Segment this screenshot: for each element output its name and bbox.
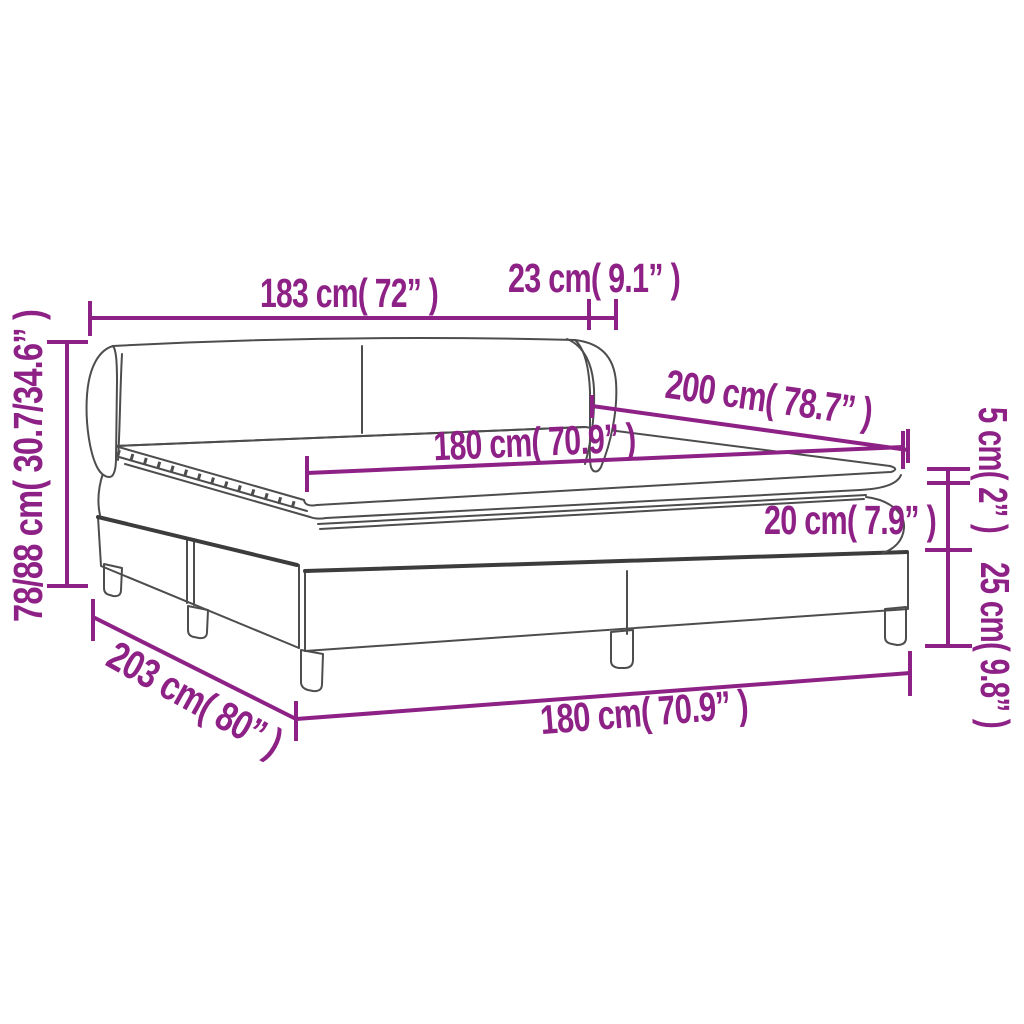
bed-leg	[885, 607, 906, 645]
base-top-edge	[305, 552, 907, 571]
label-header-width: 183 cm( 72” )	[260, 270, 438, 316]
label-base-height: 25 cm( 9.8” )	[972, 562, 1018, 728]
diagram-svg: 183 cm( 72” ) 23 cm( 9.1” ) 78/88 cm( 30…	[0, 0, 1024, 1024]
headboard-left-wing	[87, 346, 117, 477]
dim-line-wing-depth	[589, 299, 616, 330]
label-wing-depth: 23 cm( 9.1” )	[508, 255, 680, 301]
dimension-diagram: 183 cm( 72” ) 23 cm( 9.1” ) 78/88 cm( 30…	[0, 0, 1024, 1024]
label-base-width: 180 cm( 70.9” )	[538, 681, 749, 743]
dim-line-total-height	[47, 342, 88, 586]
box-spring-base	[98, 517, 908, 691]
label-bed-length: 200 cm( 78.7” )	[663, 361, 875, 436]
label-total-height: 78/88 cm( 30.7/34.6” )	[5, 310, 51, 622]
headboard-top-edge	[113, 338, 575, 346]
dimension-labels: 183 cm( 72” ) 23 cm( 9.1” ) 78/88 cm( 30…	[5, 255, 1018, 765]
label-mattress-thickness: 20 cm( 7.9” )	[764, 497, 936, 543]
base-top-edge	[98, 517, 297, 565]
label-base-length: 203 cm( 80” )	[100, 632, 290, 765]
label-topper-thickness: 5 cm( 2” )	[970, 407, 1016, 533]
dim-line-height-stack	[925, 469, 972, 646]
bed-leg	[611, 630, 633, 668]
bed-leg	[301, 650, 323, 691]
label-mattress-width: 180 cm( 70.9” )	[432, 415, 636, 470]
bed-leg	[188, 606, 208, 638]
